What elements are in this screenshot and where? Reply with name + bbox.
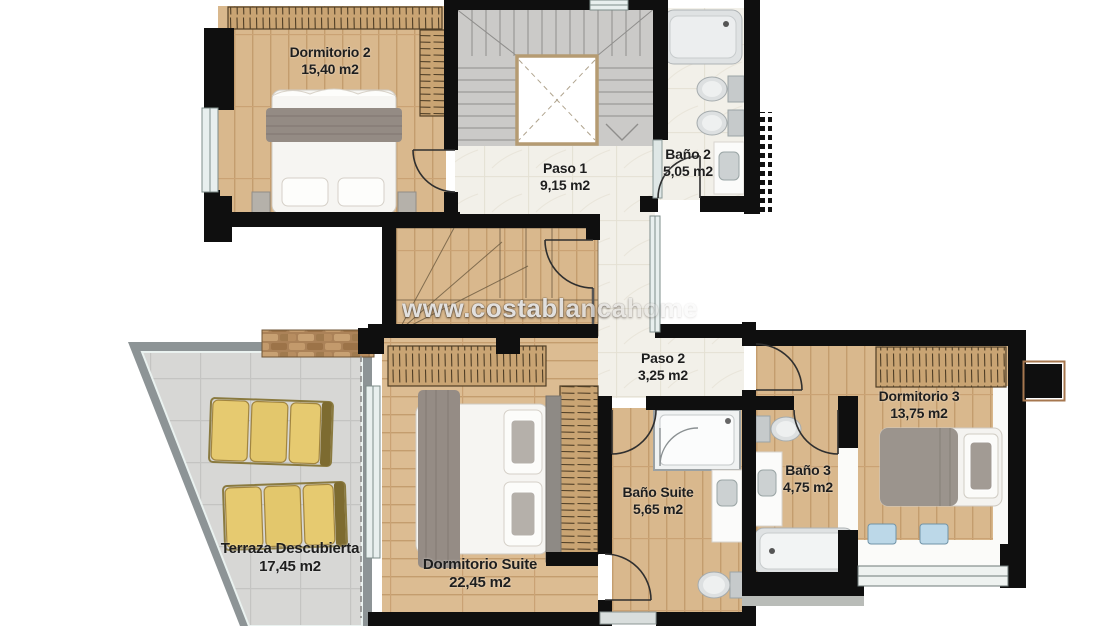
wall [444,0,458,150]
sink-bano-2 [714,142,744,194]
toilet-bano-suite [698,572,744,598]
wall [646,396,756,410]
sink-bano-suite [712,470,742,542]
room-name: Baño Suite [622,484,693,501]
stool [920,524,948,544]
wardrobe-suite-top [388,346,546,386]
room-name: Dormitorio 3 [879,388,960,405]
wall [496,324,520,354]
room-label-dormitorio-2: Dormitorio 2 15,40 m2 [290,44,371,77]
double-bed-dormitorio-2 [252,89,416,216]
bed-duvet [880,428,958,506]
wall [598,396,612,554]
room-name: Dormitorio 2 [290,44,371,61]
wall [444,0,590,10]
window-dormitorio-3 [858,566,1008,586]
room-area: 13,75 m2 [879,405,960,422]
room-area: 4,75 m2 [783,479,833,496]
room-area: 9,15 m2 [540,177,590,194]
bed-throw [418,390,460,568]
room-area: 5,65 m2 [622,501,693,518]
toothed-wall-edge [760,112,772,216]
room-label-dormitorio-3: Dormitorio 3 13,75 m2 [879,388,960,421]
wardrobe-suite-side [560,386,598,554]
wall [742,572,864,596]
room-label-dormitorio-suite: Dormitorio Suite 22,45 m2 [423,556,537,591]
room-name: Paso 2 [638,350,688,367]
headboard [546,396,561,562]
pillow [282,178,328,206]
window-suite-bottom [600,612,656,624]
stone-wall [262,330,374,357]
watermark: www.costablancahome [402,293,698,324]
exterior-sill [742,596,864,606]
pillow-accent [511,492,535,536]
wall [396,214,588,228]
stool [868,524,896,544]
floor-plan: Dormitorio 2 15,40 m2 Paso 1 9,15 m2 Bañ… [0,0,1110,626]
wall [744,0,760,214]
room-name: Paso 1 [540,160,590,177]
room-area: 17,45 m2 [221,558,360,576]
pillow-accent [511,420,535,464]
room-name: Dormitorio Suite [423,556,537,574]
window-suite-terrace [366,386,380,558]
bidet-bano-2 [697,110,744,136]
wall [204,196,232,242]
shower-bano-suite [654,410,740,470]
pillow [338,178,384,206]
room-label-terraza: Terraza Descubierta 17,45 m2 [221,540,360,575]
room-area: 3,25 m2 [638,367,688,384]
wall [838,396,858,448]
wardrobe-dormitorio-3 [876,347,1006,387]
room-label-bano-2: Baño 2 5,05 m2 [663,146,713,179]
room-label-paso-1: Paso 1 9,15 m2 [540,160,590,193]
wall [653,0,668,140]
window-dormitorio-2 [202,108,218,192]
room-area: 22,45 m2 [423,574,537,592]
toilet-bano-2 [697,76,744,102]
room-label-bano-3: Baño 3 4,75 m2 [783,462,833,495]
wall [546,552,598,566]
wall [382,214,396,338]
wall [656,612,756,626]
terrace [128,328,384,626]
wall [368,324,598,338]
room-name: Baño 3 [783,462,833,479]
chimney [1026,364,1062,398]
wall [368,612,600,626]
wardrobe-dormitorio-2-top [228,7,442,29]
window-stairwell [590,0,628,10]
room-name: Terraza Descubierta [221,540,360,558]
room-label-bano-suite: Baño Suite 5,65 m2 [622,484,693,517]
sun-lounger [209,398,333,466]
floor-gap-bano3 [838,448,858,532]
wall [742,330,1026,346]
room-name: Baño 2 [663,146,713,163]
wall [756,396,794,410]
wall [742,322,756,344]
double-bed-suite [416,390,561,568]
glass-partition-bano-2 [653,140,662,198]
wall [204,28,234,110]
bathtub-bano-2 [664,10,742,64]
bed-throw [266,108,402,142]
sink-bano-3 [754,452,782,526]
room-area: 15,40 m2 [290,61,371,78]
wall [655,324,756,338]
room-area: 5,05 m2 [663,163,713,180]
single-bed-dormitorio-3 [880,428,1002,506]
room-label-paso-2: Paso 2 3,25 m2 [638,350,688,383]
wall [586,214,600,240]
pillow-accent [970,442,992,490]
